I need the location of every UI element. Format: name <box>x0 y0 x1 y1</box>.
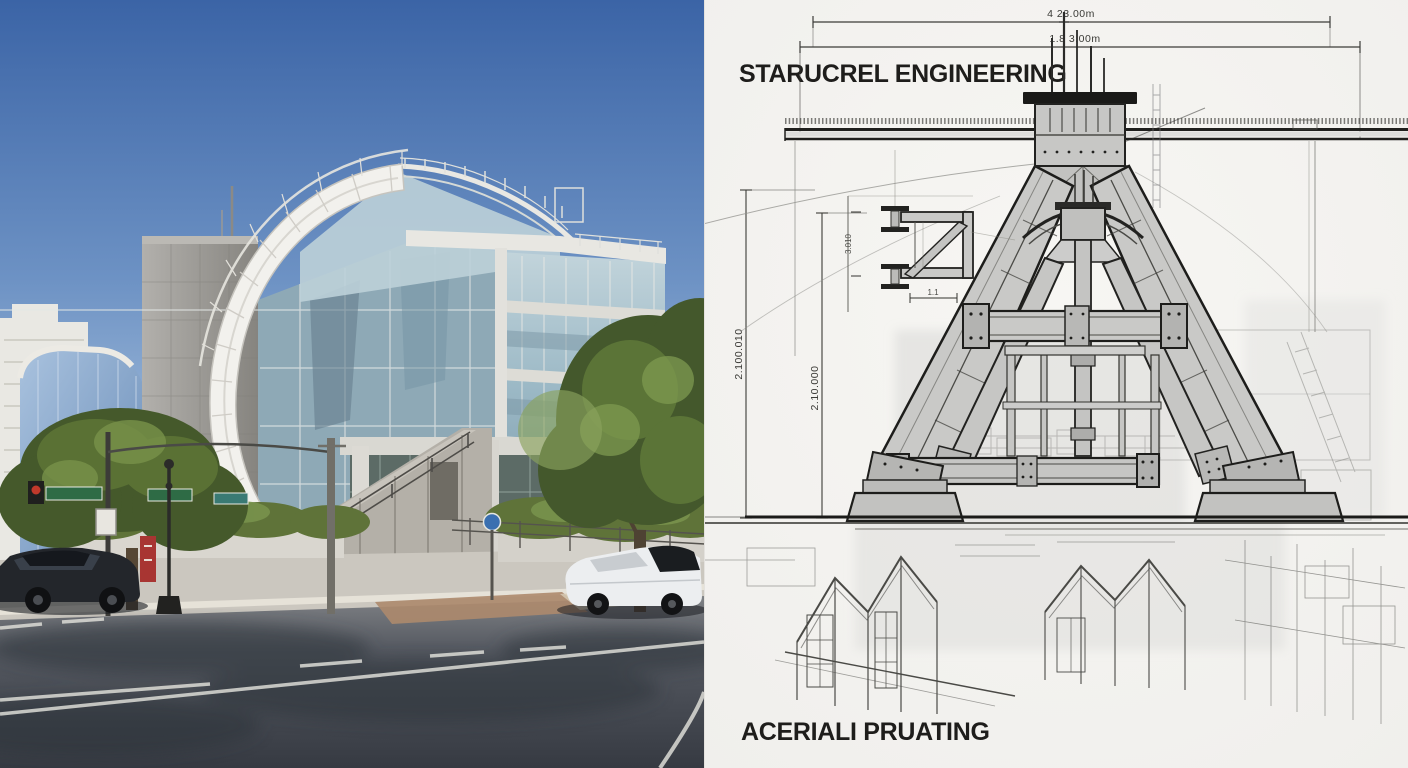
street-name-sign <box>214 493 248 504</box>
dim-detail-height: 3.010 <box>844 233 853 254</box>
truss-cap <box>1023 92 1137 166</box>
dim-left-outer: 2.100.010 <box>733 328 745 379</box>
dim-top-inner: 1.8 3.00m <box>1049 33 1100 45</box>
dim-top-outer: 4 23.00m <box>1047 8 1095 20</box>
drawing-title: STARUCREL ENGINEERING <box>739 60 1067 88</box>
drawing-scene: STARUCREL ENGINEERING ACERIALI PRUATING … <box>705 0 1408 768</box>
street-name-sign <box>46 487 102 500</box>
building-photograph <box>0 0 705 768</box>
dim-detail-small: 1.1 <box>927 288 939 297</box>
photo-scene <box>0 0 705 768</box>
drawing-caption: ACERIALI PRUATING <box>741 718 990 746</box>
engineering-drawing: STARUCREL ENGINEERING ACERIALI PRUATING … <box>705 0 1408 768</box>
composite-image: STARUCREL ENGINEERING ACERIALI PRUATING … <box>0 0 1408 768</box>
dim-left-inner: 2.10.000 <box>809 366 821 411</box>
lamp-base <box>156 596 182 614</box>
utility-pole <box>327 438 335 614</box>
round-blue-sign <box>484 514 501 531</box>
regulatory-sign <box>96 509 116 535</box>
red-hand-signal <box>32 486 41 495</box>
